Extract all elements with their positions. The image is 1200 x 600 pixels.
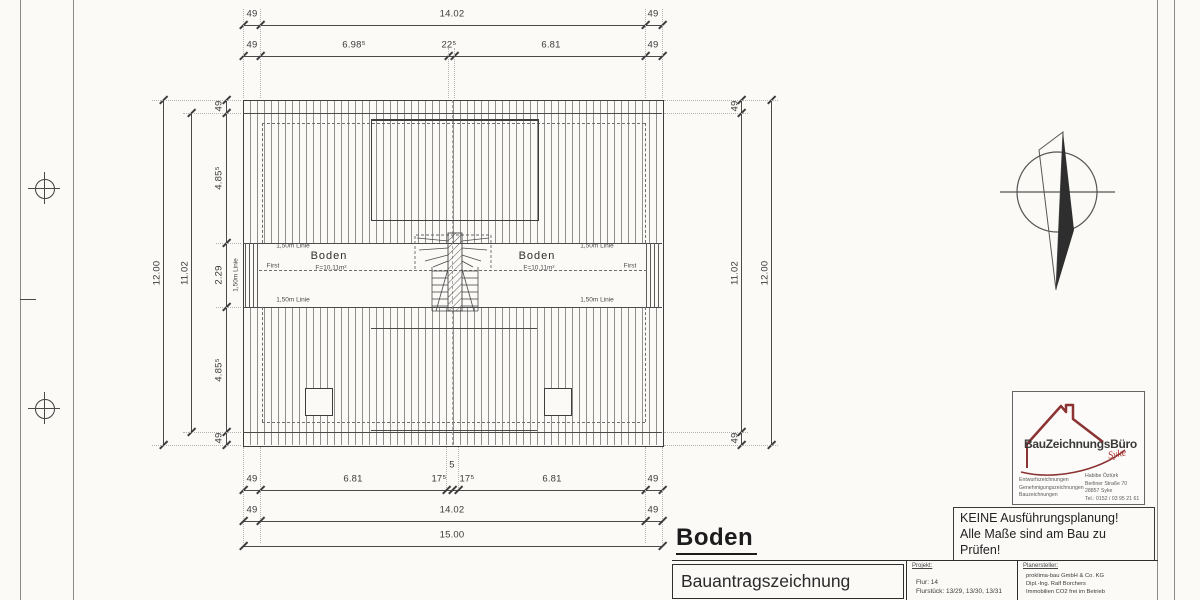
150cm-height-line-bottom bbox=[262, 422, 645, 423]
dimension-line bbox=[741, 100, 742, 445]
roof-opening-left bbox=[305, 388, 333, 416]
dimension-label: 49 bbox=[730, 101, 741, 112]
dimension-label: 5 bbox=[449, 460, 454, 471]
registration-mark-cross bbox=[44, 172, 45, 204]
dimension-label: 14.02 bbox=[440, 9, 465, 20]
logo-contact: Habibe Öztürk Berliner Straße 70 28857 S… bbox=[1085, 473, 1139, 503]
roof-opening-right bbox=[544, 388, 572, 416]
sheet-border-left-outer bbox=[20, 0, 21, 600]
room-area-left: F=10.11m² bbox=[315, 265, 346, 272]
staircase-detail bbox=[403, 229, 503, 314]
floor-opening-bottom-edge2 bbox=[371, 430, 537, 431]
logo-services: Entwurfszeichnungen Genehmigungszeichnun… bbox=[1019, 477, 1084, 500]
page-title: Boden bbox=[676, 524, 757, 555]
dimension-label: 14.02 bbox=[440, 505, 465, 516]
room-label-left: Boden bbox=[311, 250, 348, 262]
drawing-type-cell: Bauantragszeichnung bbox=[672, 564, 904, 599]
dimension-label: 49 bbox=[214, 101, 225, 112]
dimension-label: 12.00 bbox=[152, 261, 163, 286]
title-block-divider bbox=[906, 560, 907, 600]
dimension-line bbox=[226, 100, 227, 445]
150cm-height-line-left-top bbox=[262, 123, 263, 243]
project-info: Flur: 14 Flurstück: 13/29, 13/30, 13/31 bbox=[916, 578, 1002, 596]
gable-wall-left bbox=[245, 243, 259, 307]
dimension-label: 49 bbox=[648, 474, 659, 485]
line150-label: 1,50m Linie bbox=[233, 258, 240, 292]
dimension-label: 11.02 bbox=[180, 261, 191, 285]
sheet-border-left-inner bbox=[73, 0, 74, 600]
dimension-label: 49 bbox=[247, 505, 258, 516]
line150-label: 1,50m Linie bbox=[580, 297, 614, 304]
dimension-label: 12.00 bbox=[760, 261, 771, 286]
150cm-height-line-left-bottom bbox=[262, 307, 263, 422]
dimension-line bbox=[771, 100, 772, 445]
dimension-label: 4.85⁵ bbox=[214, 358, 225, 381]
dimension-label: 49 bbox=[648, 505, 659, 516]
150cm-height-line-right-top bbox=[645, 123, 646, 243]
logo-box: BauZeichnungsBüro Syke Entwurfszeichnung… bbox=[1012, 391, 1145, 505]
title-block-top-border bbox=[672, 560, 1158, 561]
registration-mark-icon bbox=[35, 399, 55, 419]
room-area-right: F=10.11m² bbox=[523, 265, 554, 272]
author-info: proklima-bau GmbH & Co. KG Dipl.-Ing. Ra… bbox=[1026, 572, 1105, 596]
dimension-label: 6.81 bbox=[542, 474, 561, 485]
dimension-line bbox=[243, 521, 662, 522]
dimension-label: 17⁵ bbox=[459, 474, 474, 485]
dimension-line bbox=[163, 100, 164, 445]
project-header: Projekt: bbox=[912, 563, 932, 569]
150cm-height-line-right-bottom bbox=[645, 307, 646, 422]
dimension-line bbox=[243, 546, 662, 547]
dimension-line bbox=[243, 25, 662, 26]
dimension-label: 6.81 bbox=[343, 474, 362, 485]
ridge-label-right: First bbox=[624, 263, 637, 270]
dimension-label: 49 bbox=[648, 9, 659, 20]
dimension-line bbox=[191, 113, 192, 432]
north-arrow-icon bbox=[995, 122, 1120, 297]
dimension-label: 49 bbox=[247, 9, 258, 20]
drawing-type-label: Bauantragszeichnung bbox=[681, 571, 850, 592]
sheet-border-right-inner bbox=[1157, 0, 1158, 600]
fold-mark bbox=[20, 299, 36, 300]
line150-label: 1,50m Linie bbox=[276, 243, 310, 250]
dimension-label: 4.85⁵ bbox=[214, 166, 225, 189]
dimension-label: 17⁵ bbox=[431, 474, 446, 485]
dimension-label: 15.00 bbox=[440, 530, 465, 541]
gable-wall-right bbox=[646, 243, 660, 307]
title-block-divider bbox=[1017, 560, 1018, 600]
notice-line2: Alle Maße sind am Bau zu Prüfen! bbox=[960, 526, 1148, 558]
registration-mark-cross bbox=[44, 392, 45, 424]
dimension-label: 6.81 bbox=[541, 40, 560, 51]
dimension-label: 49 bbox=[247, 474, 258, 485]
floor-opening-top bbox=[371, 119, 539, 221]
dimension-label: 49 bbox=[730, 433, 741, 444]
dimension-label: 49 bbox=[648, 40, 659, 51]
sheet-border-right-outer bbox=[1174, 0, 1175, 600]
drawing-sheet: 1,50m Linie 1,50m Linie 1,50m Linie 1,50… bbox=[0, 0, 1200, 600]
line150-label: 1,50m Linie bbox=[276, 297, 310, 304]
registration-mark-icon bbox=[35, 179, 55, 199]
room-label-right: Boden bbox=[519, 250, 556, 262]
author-header: Planersteller: bbox=[1023, 563, 1058, 569]
dimension-label: 6.98⁵ bbox=[342, 40, 365, 51]
dimension-label: 49 bbox=[214, 433, 225, 444]
floor-opening-bottom-edge1 bbox=[371, 328, 537, 329]
notice-line1: KEINE Ausführungsplanung! bbox=[960, 510, 1148, 526]
dimension-label: 11.02 bbox=[730, 261, 741, 285]
dimension-label: 49 bbox=[247, 40, 258, 51]
dimension-label: 2.29 bbox=[214, 265, 225, 284]
notice-box: KEINE Ausführungsplanung! Alle Maße sind… bbox=[953, 507, 1155, 561]
ridge-label-left: First bbox=[267, 263, 280, 270]
line150-label: 1,50m Linie bbox=[580, 243, 614, 250]
